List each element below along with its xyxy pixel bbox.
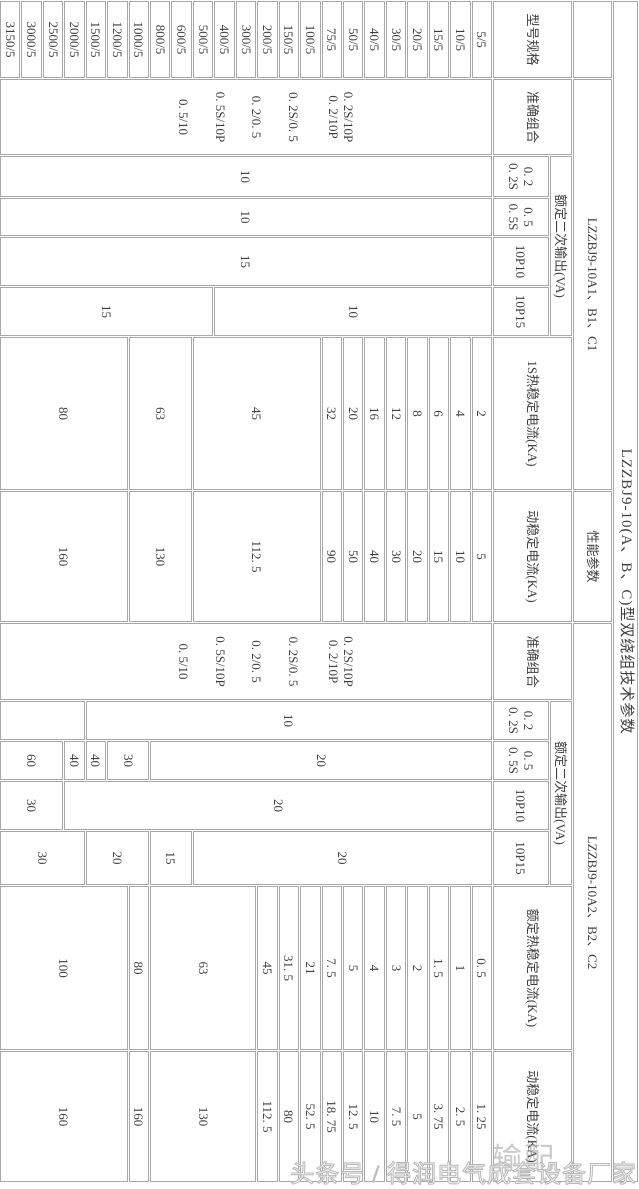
data-cell: 45 — [193, 337, 321, 490]
section2-label-cell: LZZBJ9-10A2、B2、C2 — [573, 623, 612, 1182]
model-cell: 150/5 — [279, 1, 299, 78]
accuracy-label: 0. 2S/0. 5 — [286, 80, 301, 154]
data-cell: 6 — [429, 337, 449, 490]
model-cell: 15/5 — [429, 1, 449, 78]
model-cell: 800/5 — [150, 1, 170, 78]
data-cell: 30 — [107, 741, 149, 780]
va-subheader-cell: 0. 20. 2S — [493, 156, 549, 197]
model-cell: 2000/5 — [64, 1, 84, 78]
accuracy-header-cell: 准确组合 — [493, 79, 572, 155]
model-cell: 30/5 — [386, 1, 406, 78]
data-cell: 4 — [364, 886, 384, 1050]
data-cell: 5 — [343, 886, 363, 1050]
rotated-table-wrapper: LZZBJ9-10(A、B、C)型双绕组技术参数LZZBJ9-10A1、B1、C… — [0, 0, 639, 1182]
data-cell: 15 — [429, 491, 449, 622]
va-subheader-cell: 0. 50. 5S — [493, 741, 549, 780]
data-cell: 90 — [322, 491, 342, 622]
data-cell: 3 — [386, 886, 406, 1050]
data-cell: 20 — [407, 491, 427, 622]
model-cell: 1500/5 — [86, 1, 106, 78]
data-cell: 10 — [0, 198, 492, 236]
model-cell: 10/5 — [450, 1, 470, 78]
accuracy-label: 0. 2S/0. 5 — [286, 624, 301, 699]
data-cell: 63 — [150, 886, 256, 1050]
model-cell: 1000/5 — [129, 1, 149, 78]
accuracy-label: 0. 5/10 — [176, 624, 191, 699]
accuracy-header-cell: 准确组合 — [493, 623, 572, 700]
model-header-cell: 型号规格 — [493, 1, 572, 78]
accuracy-label: 0. 2/0. 5 — [249, 624, 264, 699]
model-cell: 20/5 — [407, 1, 427, 78]
accuracy-label: 0. 2/0. 5 — [249, 80, 264, 154]
data-cell: 40 — [364, 491, 384, 622]
thermal-header-cell: 额定热稳定电流(KA) — [493, 886, 572, 1050]
data-cell: 21 — [300, 886, 320, 1050]
data-cell: 32 — [322, 337, 342, 490]
thermal-header-cell: 1S热稳定电流(KA) — [493, 337, 572, 490]
data-cell: 130 — [129, 491, 192, 622]
model-cell: 400/5 — [214, 1, 234, 78]
va-subheader-cell: 0. 20. 2S — [493, 701, 549, 740]
model-cell: 1200/5 — [107, 1, 127, 78]
accuracy-label: 0. 2S/10P0. 2/10P — [326, 624, 356, 699]
accuracy-label: 0. 5S/10P — [213, 624, 228, 699]
data-cell: 45 — [257, 886, 277, 1050]
data-cell: 10 — [214, 287, 492, 336]
data-cell: 8 — [407, 337, 427, 490]
data-cell: 10 — [86, 701, 492, 740]
data-cell: 80 — [129, 886, 149, 1050]
data-cell: 2 — [407, 886, 427, 1050]
va-subheader-cell: 10P10 — [493, 237, 549, 286]
data-cell: 4 — [450, 337, 470, 490]
model-cell: 50/5 — [343, 1, 363, 78]
data-cell: 20 — [343, 337, 363, 490]
va-group-header-cell: 额定二次输出(VA) — [550, 701, 572, 885]
data-cell: 30 — [0, 781, 63, 830]
performance-label-cell: 性能参数 — [573, 491, 612, 622]
data-cell: 40 — [86, 741, 106, 780]
data-cell: 7. 5 — [322, 886, 342, 1050]
data-cell: 10 — [450, 491, 470, 622]
corner-cell — [573, 1, 612, 78]
data-cell: 1. 5 — [429, 886, 449, 1050]
accuracy-label: 0. 2S/10P0. 2/10P — [326, 80, 356, 154]
data-cell: 5 — [472, 491, 492, 622]
model-cell: 100/5 — [300, 1, 320, 78]
data-cell: 1 — [450, 886, 470, 1050]
data-cell: 20 — [64, 781, 492, 830]
data-cell: 63 — [129, 337, 192, 490]
va-subheader-cell: 0. 50. 5S — [493, 198, 549, 236]
data-cell — [0, 701, 85, 740]
data-cell: 100 — [0, 886, 128, 1050]
data-cell: 112. 5 — [257, 1051, 277, 1182]
page: { "watermark": "输配", "footer": { "credit… — [0, 0, 639, 1189]
spec-table: LZZBJ9-10(A、B、C)型双绕组技术参数LZZBJ9-10A1、B1、C… — [0, 0, 639, 1182]
model-cell: 300/5 — [236, 1, 256, 78]
data-cell: 20 — [150, 741, 492, 780]
data-cell: 50 — [343, 491, 363, 622]
data-cell: 160 — [0, 1051, 128, 1182]
data-cell: 30 — [0, 831, 85, 885]
data-cell: 16 — [364, 337, 384, 490]
dynamic-header-cell: 动稳定电流(KA) — [493, 491, 572, 622]
data-cell: 20 — [86, 831, 149, 885]
data-cell: 60 — [0, 741, 63, 780]
data-cell: 160 — [129, 1051, 149, 1182]
data-cell: 130 — [150, 1051, 256, 1182]
model-cell: 5/5 — [472, 1, 492, 78]
accuracy-label: 0. 5S/10P — [213, 80, 228, 154]
data-cell: 112. 5 — [193, 491, 321, 622]
data-cell: 80 — [0, 337, 128, 490]
va-subheader-cell: 10P10 — [493, 781, 549, 830]
data-cell: 15 — [0, 237, 492, 286]
va-group-header-cell: 额定二次输出(VA) — [550, 156, 572, 336]
data-cell: 40 — [64, 741, 84, 780]
data-cell: 0. 5 — [472, 886, 492, 1050]
accuracy-cell: 0. 2S/10P0. 2/10P0. 2S/0. 50. 2/0. 50. 5… — [0, 79, 492, 155]
model-cell: 2500/5 — [43, 1, 63, 78]
model-cell: 3150/5 — [0, 1, 20, 78]
model-cell: 40/5 — [364, 1, 384, 78]
data-cell: 2 — [472, 337, 492, 490]
data-cell: 30 — [386, 491, 406, 622]
va-subheader-cell: 10P15 — [493, 831, 549, 885]
data-cell: 10 — [0, 156, 492, 197]
data-cell: 15 — [150, 831, 192, 885]
model-cell: 500/5 — [193, 1, 213, 78]
table-title-cell: LZZBJ9-10(A、B、C)型双绕组技术参数 — [613, 1, 638, 1182]
data-cell: 15 — [0, 287, 213, 336]
model-cell: 600/5 — [172, 1, 192, 78]
accuracy-label: 0. 5/10 — [176, 80, 191, 154]
model-cell: 200/5 — [257, 1, 277, 78]
accuracy-cell: 0. 2S/10P0. 2/10P0. 2S/0. 50. 2/0. 50. 5… — [0, 623, 492, 700]
va-subheader-cell: 10P15 — [493, 287, 549, 336]
model-cell: 3000/5 — [21, 1, 41, 78]
footer-credit: 头条号 / 得润电气成套设备厂家 — [290, 1154, 637, 1189]
data-cell: 160 — [0, 491, 128, 622]
data-cell: 31. 5 — [279, 886, 299, 1050]
data-cell: 20 — [193, 831, 492, 885]
model-cell: 75/5 — [322, 1, 342, 78]
section1-label-cell: LZZBJ9-10A1、B1、C1 — [573, 79, 612, 490]
data-cell: 12 — [386, 337, 406, 490]
